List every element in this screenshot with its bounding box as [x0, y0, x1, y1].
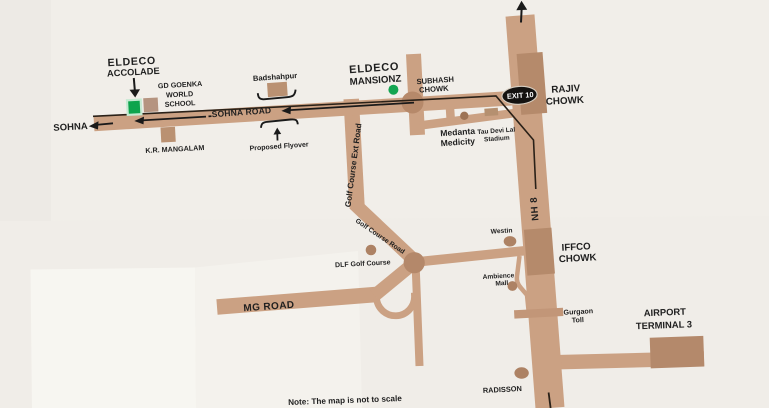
svg-text:AIRPORT: AIRPORT: [644, 306, 687, 318]
svg-text:Westin: Westin: [491, 227, 513, 235]
svg-text:TERMINAL 3: TERMINAL 3: [636, 318, 692, 331]
svg-text:SCHOOL: SCHOOL: [164, 98, 196, 109]
svg-text:NH 8: NH 8: [529, 196, 542, 221]
svg-text:CHOWK: CHOWK: [559, 252, 597, 265]
svg-text:Mall: Mall: [495, 280, 508, 288]
svg-text:RAJIV: RAJIV: [551, 83, 581, 96]
svg-text:Toll: Toll: [572, 316, 585, 325]
svg-text:SOHNA: SOHNA: [53, 121, 88, 134]
svg-text:CHOWK: CHOWK: [546, 95, 585, 108]
svg-text:EXIT 10: EXIT 10: [507, 90, 534, 101]
